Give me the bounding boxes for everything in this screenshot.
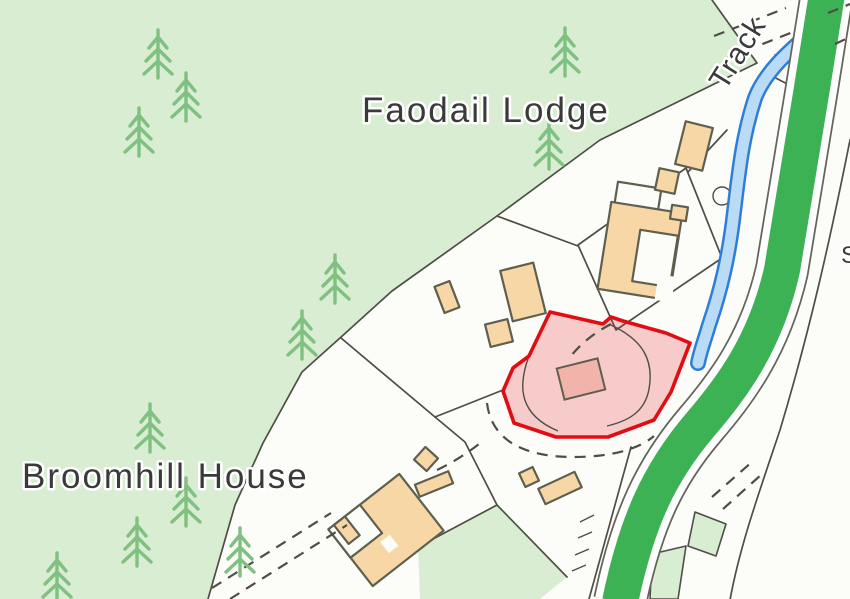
- map-canvas: Faodail Lodge Broomhill House Track S: [0, 0, 850, 599]
- map-image[interactable]: Faodail Lodge Broomhill House Track S: [0, 0, 850, 599]
- outbuilding: [485, 319, 513, 347]
- lodge-link-building: [670, 205, 688, 221]
- place-label-broomhill-house: Broomhill House: [22, 457, 309, 496]
- place-label-faodail-lodge: Faodail Lodge: [362, 91, 610, 130]
- lodge-small-building: [655, 168, 679, 194]
- place-label-edge-partial: S: [841, 242, 850, 269]
